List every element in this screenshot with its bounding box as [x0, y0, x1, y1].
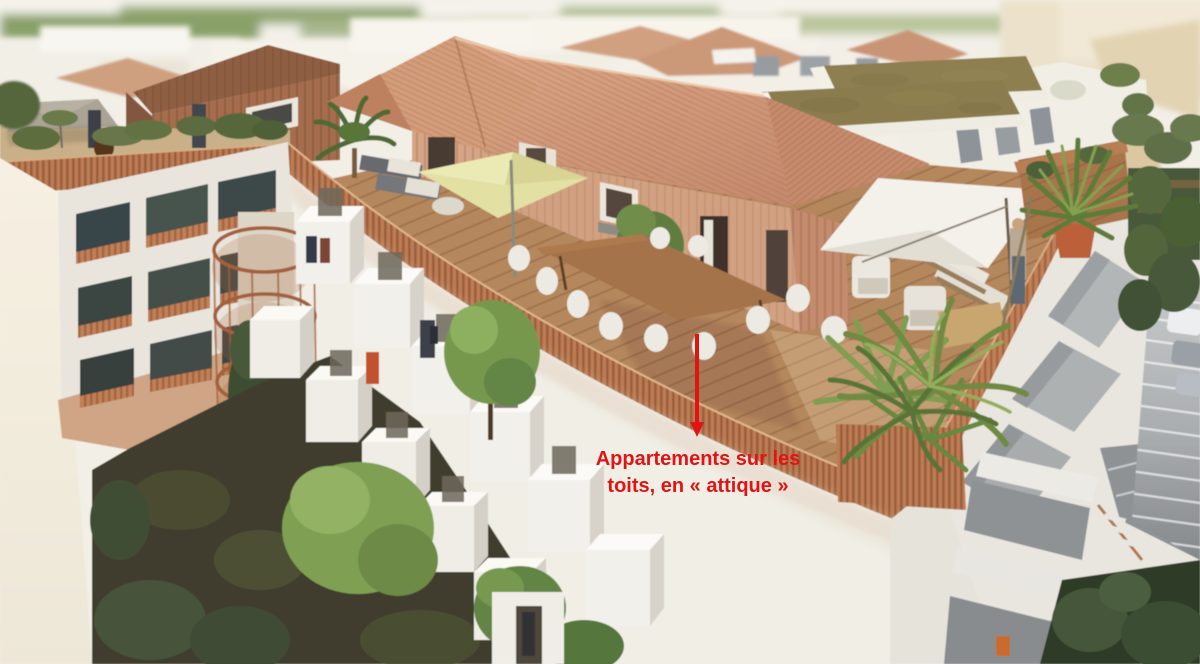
svg-text:toits, en « attique »: toits, en « attique » [607, 475, 788, 497]
svg-text:Appartements sur les: Appartements sur les [596, 448, 801, 470]
